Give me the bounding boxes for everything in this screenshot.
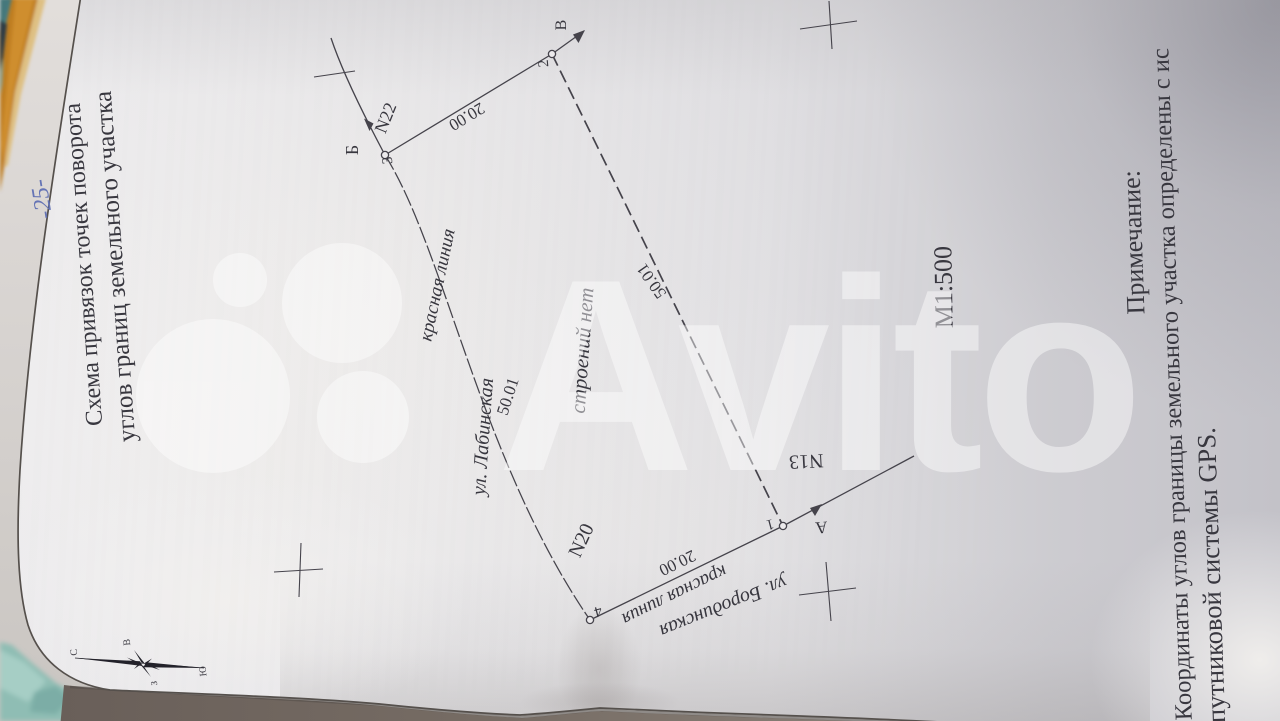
- svg-text:2: 2: [536, 59, 553, 68]
- svg-text:3: 3: [380, 156, 397, 165]
- svg-text:В: В: [553, 20, 570, 31]
- svg-text:Ю: Ю: [198, 666, 210, 677]
- svg-text:Avito: Avito: [497, 223, 1137, 529]
- svg-text:С: С: [69, 648, 81, 656]
- svg-text:Б: Б: [342, 145, 362, 155]
- svg-text:В: В: [122, 638, 134, 646]
